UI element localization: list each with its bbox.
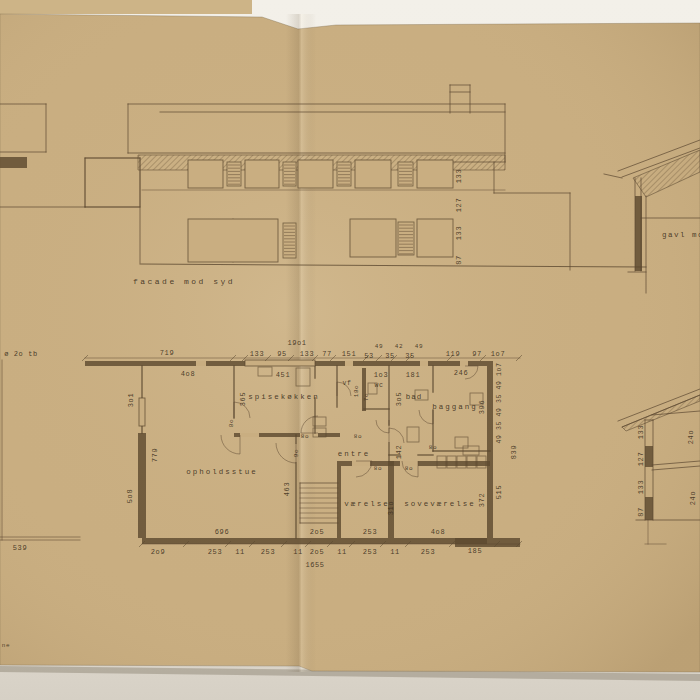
gavl-caption: gavl mod xyxy=(662,232,700,240)
dim-label: 8o xyxy=(354,434,362,440)
dim-label: 19o1 xyxy=(287,340,306,347)
dim-label: 372 xyxy=(479,493,486,507)
dim-label: 9o xyxy=(294,449,300,457)
dim-label: 119 xyxy=(446,351,460,358)
dim-label: 8o xyxy=(229,419,235,427)
dim-label: 3o1 xyxy=(128,393,135,407)
dim-label: 77 xyxy=(322,351,332,358)
dim-label: 35 xyxy=(385,353,395,360)
room-label-vf: vf xyxy=(342,381,351,388)
dim-label: 8o xyxy=(374,466,382,472)
dim-label: 127 xyxy=(456,198,463,212)
dim-label: 451 xyxy=(276,372,290,379)
dim-label: 2o5 xyxy=(310,549,324,556)
dim-label: 8o xyxy=(429,445,437,451)
dim-label: 133 xyxy=(638,425,645,439)
dim-label: 133 xyxy=(456,169,463,183)
dim-label: 18o xyxy=(354,385,360,398)
room-label-wc: wc xyxy=(374,383,383,390)
room-label-bad: bad xyxy=(406,394,423,402)
note-bottom-left: ne xyxy=(2,643,10,649)
dim-label: 11 xyxy=(337,549,347,556)
dim-label: 185 xyxy=(468,548,482,555)
dim-label: 1o3 xyxy=(374,372,388,379)
dim-label: 11 xyxy=(235,549,245,556)
dim-label: 35 xyxy=(405,353,415,360)
dim-label: 2o9 xyxy=(151,549,165,556)
dim-label: 253 xyxy=(363,529,377,536)
dim-label: 11 xyxy=(293,549,303,556)
dim-label: 127 xyxy=(638,452,645,466)
dim-label: 97 xyxy=(472,351,482,358)
dim-label: 133 xyxy=(300,351,314,358)
dim-label: 53 xyxy=(364,353,374,360)
dim-label: 839 xyxy=(511,445,518,459)
dim-label: 365 xyxy=(240,392,247,406)
dim-label: 31o xyxy=(388,501,395,515)
photo-of-architectural-drawing: facade mod sydgavl modø 2o tbne539133127… xyxy=(0,0,700,700)
dim-label: 253 xyxy=(208,549,222,556)
note-left: ø 2o tb xyxy=(4,351,38,358)
dim-label: 719 xyxy=(160,350,174,357)
dim-label: 42 xyxy=(395,344,403,350)
dim-label: 463 xyxy=(284,482,291,496)
dim-label: 696 xyxy=(215,529,229,536)
labels-layer: facade mod sydgavl modø 2o tbne539133127… xyxy=(0,0,700,700)
dim-label: 253 xyxy=(363,549,377,556)
dim-label: 133 xyxy=(250,351,264,358)
dim-label: 142 xyxy=(396,445,403,459)
dim-label: 4o8 xyxy=(181,371,195,378)
dim-label: 151 xyxy=(342,351,356,358)
dim-label: 49 xyxy=(375,344,383,350)
dim-label: 246 xyxy=(454,370,468,377)
room-label-baggang: baggang xyxy=(432,404,478,412)
dim-label: 11 xyxy=(390,549,400,556)
room-label-entre: entre xyxy=(338,451,371,459)
dim-label: 8o xyxy=(301,434,309,440)
dim-label: 95 xyxy=(277,351,287,358)
dim-label: 24o xyxy=(688,430,695,444)
dim-539: 539 xyxy=(13,545,27,552)
dim-label: 779 xyxy=(152,448,159,462)
dim-label: 8o xyxy=(405,466,413,472)
dim-label: 253 xyxy=(421,549,435,556)
dim-label: 133 xyxy=(456,226,463,240)
dim-label: 49 xyxy=(415,344,423,350)
dim-label: 87 xyxy=(638,507,645,517)
dim-label: 4o8 xyxy=(431,529,445,536)
dim-label: 181 xyxy=(406,372,420,379)
facade-caption: facade mod syd xyxy=(133,278,235,286)
room-label-opholdsstue: opholdsstue xyxy=(186,469,258,477)
dim-label: 133 xyxy=(638,480,645,494)
dim-label: 7o xyxy=(364,393,370,401)
dim-label: 49 35 49 35 49 1o7 xyxy=(497,362,504,443)
dim-label: 1o7 xyxy=(491,351,505,358)
dim-label: 2o5 xyxy=(310,529,324,536)
room-label-sovevaerelse: soveværelse xyxy=(404,501,476,509)
room-label-vaerelse: værelse xyxy=(344,501,390,509)
dim-label: 5o8 xyxy=(127,489,134,503)
dim-label: 253 xyxy=(261,549,275,556)
room-label-spisekokken: spisekøkken xyxy=(248,394,320,402)
dim-label: 87 xyxy=(456,255,463,265)
dim-label: 515 xyxy=(496,485,503,499)
dim-label: 396 xyxy=(479,400,486,414)
dim-label: 3o5 xyxy=(396,392,403,406)
dim-label: 24o xyxy=(690,491,697,505)
dim-label: 1655 xyxy=(305,562,324,569)
